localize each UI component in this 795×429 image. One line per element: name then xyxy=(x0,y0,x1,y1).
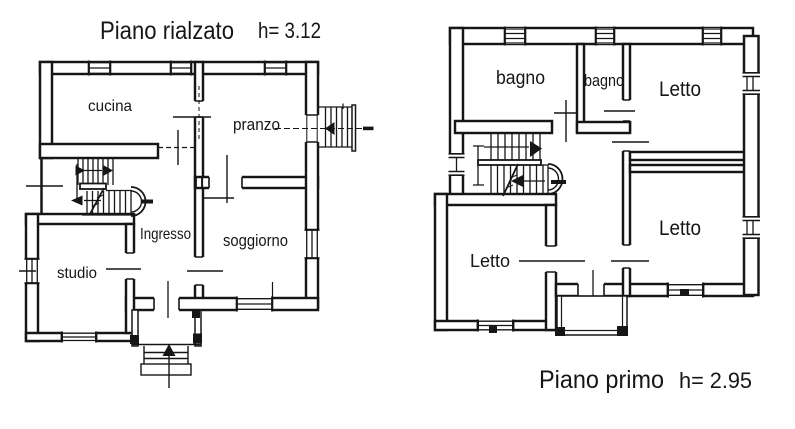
svg-text:bagno: bagno xyxy=(496,68,545,89)
svg-text:studio: studio xyxy=(57,265,97,282)
svg-text:pranzo: pranzo xyxy=(233,115,280,134)
svg-text:Letto: Letto xyxy=(470,251,510,271)
svg-text:Letto: Letto xyxy=(659,78,701,101)
svg-text:h= 3.12: h= 3.12 xyxy=(258,18,321,43)
svg-text:Piano rialzato: Piano rialzato xyxy=(100,17,234,45)
svg-text:Ingresso: Ingresso xyxy=(140,226,191,243)
svg-text:bagno: bagno xyxy=(584,71,624,90)
svg-text:Piano primo: Piano primo xyxy=(539,366,664,394)
svg-text:Letto: Letto xyxy=(659,217,701,240)
svg-text:h= 2.95: h= 2.95 xyxy=(679,368,752,393)
svg-text:soggiorno: soggiorno xyxy=(223,231,288,250)
svg-text:cucina: cucina xyxy=(88,98,132,115)
